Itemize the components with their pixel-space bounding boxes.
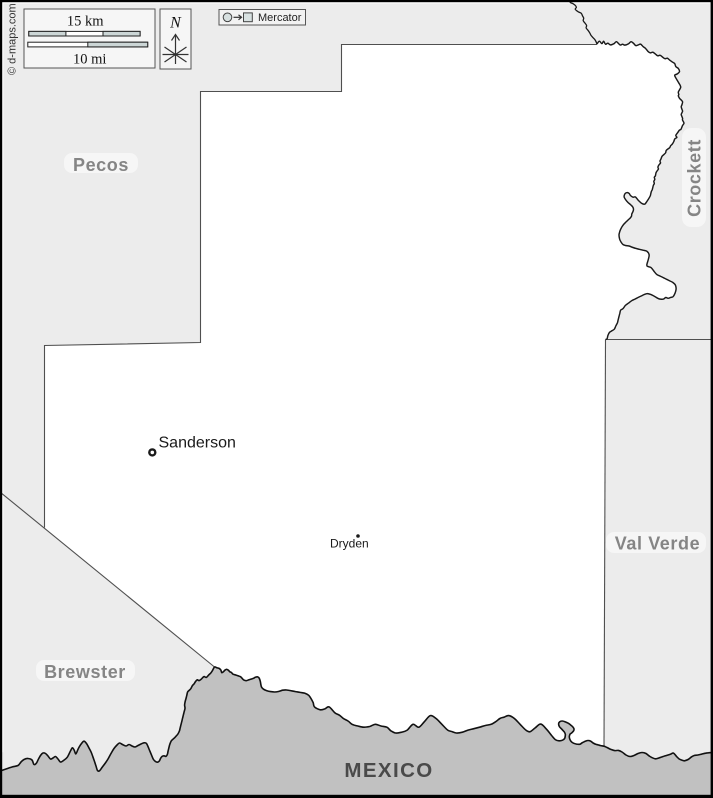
svg-text:Dryden: Dryden	[330, 537, 369, 551]
svg-text:Brewster: Brewster	[44, 662, 126, 682]
svg-text:N: N	[169, 15, 182, 32]
svg-text:MEXICO: MEXICO	[344, 759, 433, 782]
svg-text:Mercator: Mercator	[258, 12, 302, 24]
svg-text:Sanderson: Sanderson	[159, 435, 236, 452]
svg-text:10 mi: 10 mi	[73, 52, 106, 68]
svg-text:Val Verde: Val Verde	[615, 534, 700, 554]
svg-text:Crockett: Crockett	[685, 139, 705, 217]
svg-text:Pecos: Pecos	[73, 155, 129, 175]
svg-text:15 km: 15 km	[67, 14, 104, 30]
svg-text:© d-maps.com: © d-maps.com	[7, 3, 19, 75]
